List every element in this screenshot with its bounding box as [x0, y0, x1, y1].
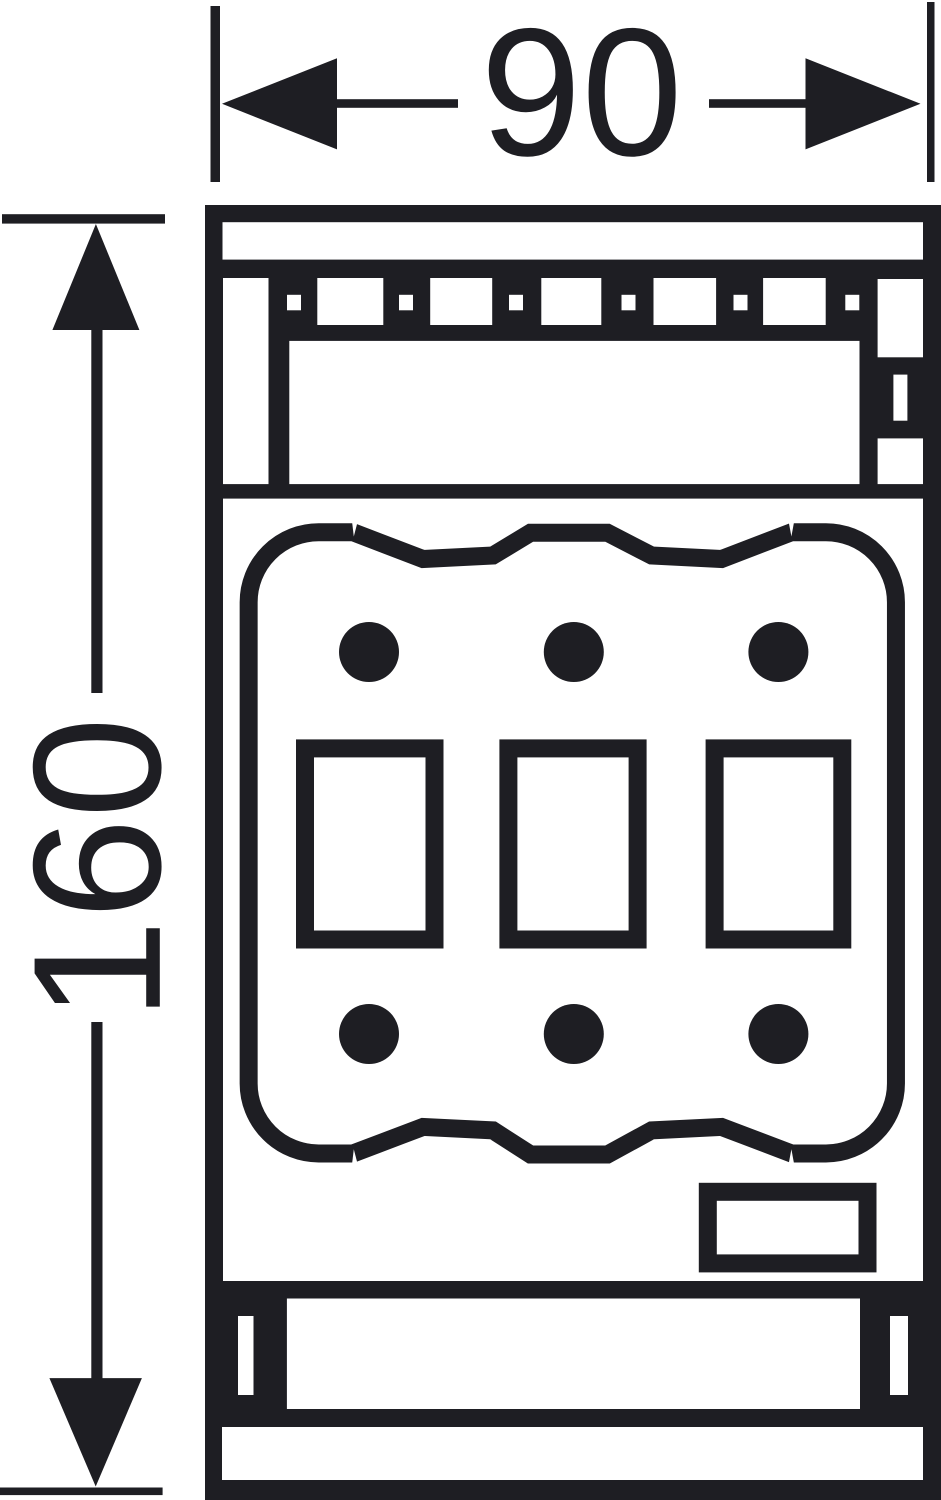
svg-text:160: 160	[0, 717, 199, 1021]
svg-text:90: 90	[480, 0, 682, 194]
